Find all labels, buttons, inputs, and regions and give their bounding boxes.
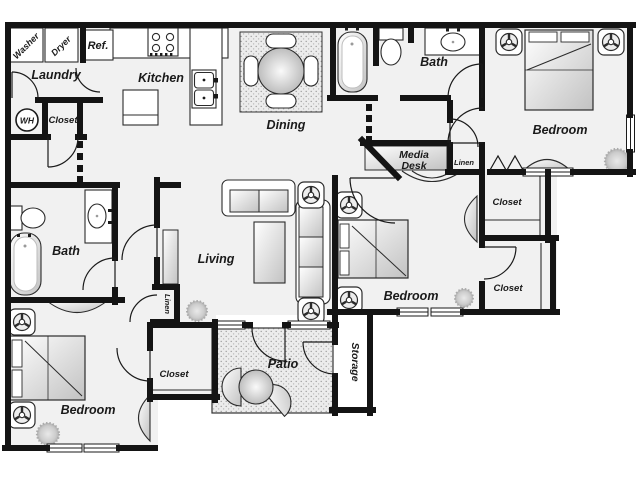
floor-plan-svg: Washer Dryer Ref. Laundry Kitchen WH Clo… <box>0 0 640 480</box>
lower-closet-label: Closet <box>159 369 189 380</box>
dining-chair <box>266 94 296 108</box>
dining-label: Dining <box>267 118 306 132</box>
ref-label: Ref. <box>88 40 109 52</box>
toilet-left <box>10 206 45 230</box>
plant <box>37 423 59 445</box>
bathtub-left <box>10 233 41 295</box>
floor-plan: Washer Dryer Ref. Laundry Kitchen WH Clo… <box>0 0 640 480</box>
window <box>288 321 330 329</box>
bed-middle <box>338 220 408 278</box>
bed-upper-right <box>525 30 593 110</box>
upper-bedroom-label: Bedroom <box>533 123 588 137</box>
sofa <box>296 200 330 304</box>
kitchen-island <box>123 90 158 125</box>
upper-right-closet-label: Closet <box>492 197 522 208</box>
lower-right-closet-label: Closet <box>493 283 523 294</box>
media-desk-label-2: Desk <box>401 160 427 172</box>
laundry-label: Laundry <box>31 68 81 82</box>
laundry-closet-label: Closet <box>48 115 78 126</box>
window <box>47 444 82 452</box>
nightstand-lamp <box>598 29 624 55</box>
plant <box>455 289 473 307</box>
window <box>397 308 428 316</box>
middle-bedroom-label: Bedroom <box>384 289 439 303</box>
end-table-lamp <box>298 298 324 324</box>
nightstand-lamp <box>9 309 35 335</box>
dining-chair <box>244 56 258 86</box>
storage-label: Storage <box>349 342 361 381</box>
toilet-upper <box>379 28 403 65</box>
lower-bedroom-label: Bedroom <box>61 403 116 417</box>
dining-chair <box>266 34 296 48</box>
window <box>84 444 119 452</box>
nightstand-lamp <box>336 192 362 218</box>
nightstand-lamp <box>496 29 522 55</box>
patio-label: Patio <box>268 357 299 371</box>
console-table <box>163 230 178 284</box>
window <box>215 321 245 329</box>
plant <box>187 301 207 321</box>
kitchen-sink <box>192 70 218 108</box>
upper-bath-label: Bath <box>420 55 448 69</box>
dining-chair <box>304 56 318 86</box>
left-bath-label: Bath <box>52 244 80 258</box>
dining-table <box>258 48 304 94</box>
end-table-lamp <box>298 182 324 208</box>
hall-linen-label: Linen <box>454 158 474 167</box>
vanity-sink-upper <box>425 28 480 55</box>
vanity-sink-left <box>85 190 112 243</box>
stove <box>148 28 178 56</box>
wh-label: WH <box>20 116 35 126</box>
living-label: Living <box>198 252 235 266</box>
patio-table <box>239 370 273 404</box>
bed-lower-left <box>10 336 85 400</box>
kitchen-label: Kitchen <box>138 71 184 85</box>
nightstand-lamp <box>9 402 35 428</box>
loveseat <box>222 180 295 216</box>
coffee-table <box>254 222 285 283</box>
bathtub-upper <box>338 28 367 93</box>
left-linen-label: Linen <box>163 294 172 314</box>
window <box>431 308 463 316</box>
window <box>627 115 635 152</box>
